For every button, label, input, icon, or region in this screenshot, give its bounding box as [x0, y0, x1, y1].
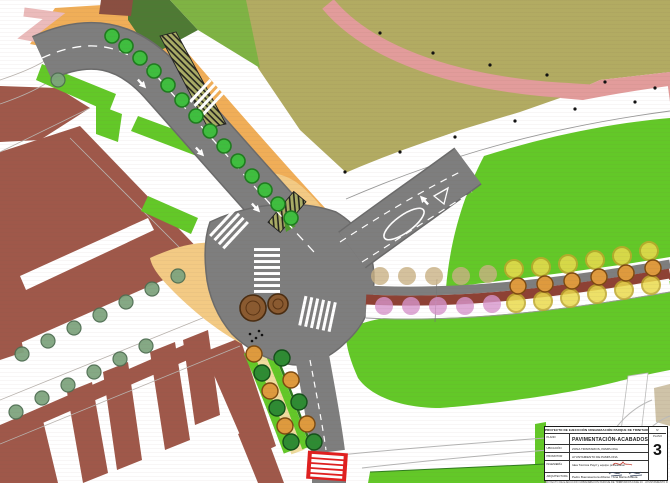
tree-symbol [87, 365, 101, 379]
tree-symbol [371, 267, 389, 285]
tree-symbol [537, 276, 553, 292]
tree-symbol [113, 352, 127, 366]
site-plan-drawing [0, 0, 670, 483]
tree-symbol [41, 334, 55, 348]
road-edge-lines-bottom [340, 438, 548, 468]
lamp-dot [431, 51, 434, 54]
tree-symbol [133, 51, 147, 65]
site-plan-page: PROYECTO DE EJECUCIÓN URBANIZACIÓN PARQU… [0, 0, 670, 483]
tree-symbol [283, 434, 299, 450]
sheet-number: 3 [649, 442, 666, 460]
lamp-dot [261, 334, 264, 337]
tree-symbol [51, 73, 65, 87]
tree-symbol [254, 365, 270, 381]
tree-symbol [119, 295, 133, 309]
tree-symbol [505, 260, 523, 278]
tree-symbol [145, 282, 159, 296]
lamp-dot [398, 150, 401, 153]
tree-symbol [119, 39, 133, 53]
promotor-value: AYUNTAMIENTO DE PAMPLONA [570, 453, 649, 461]
lamp-dot [633, 100, 636, 103]
tree-symbol [306, 434, 322, 450]
tree-symbol [564, 273, 580, 289]
ingenieria-value: Idea Técnica Payrl y equipo profesional [570, 461, 649, 473]
tree-symbol [277, 418, 293, 434]
tree-symbol [291, 394, 307, 410]
tree-symbol [479, 265, 497, 283]
lamp-dot [343, 170, 346, 173]
title-block: PROYECTO DE EJECUCIÓN URBANIZACIÓN PARQU… [544, 426, 668, 481]
tree-symbol [67, 321, 81, 335]
tree-symbol [425, 267, 443, 285]
tree-symbol [586, 251, 604, 269]
ingenieria-label: INGENIERÍA [545, 461, 570, 473]
tree-symbol [375, 297, 393, 315]
tree-symbol [175, 93, 189, 107]
tree-symbol [510, 278, 526, 294]
tree-symbol [269, 400, 285, 416]
tree-symbol [93, 308, 107, 322]
tree-symbol [591, 269, 607, 285]
red-crosswalk [306, 451, 348, 482]
tree-symbol [9, 405, 23, 419]
tree-symbol [105, 29, 119, 43]
lamp-dot [453, 135, 456, 138]
tree-symbol [456, 297, 474, 315]
sheet-corner-header: Nº [649, 427, 666, 434]
tree-symbol [618, 265, 634, 281]
tree-symbol [268, 294, 288, 314]
tree-symbol [402, 297, 420, 315]
tree-symbol [283, 372, 299, 388]
tree-symbol [398, 267, 416, 285]
arquitectura-value: Pedro Buenaventura Alfonso - Ana María Z… [570, 473, 649, 481]
tree-symbol [642, 276, 660, 294]
lamp-dot [249, 333, 252, 336]
lamp-dot [251, 340, 254, 343]
building-finger [183, 330, 220, 425]
arquitectura-label: ARQUITECTURA [545, 473, 570, 481]
lamp-dot [258, 330, 261, 333]
tree-symbol [274, 350, 290, 366]
tree-symbol [452, 267, 470, 285]
lamp-dot [488, 63, 491, 66]
promotor-label: PROMOTOR [545, 453, 570, 461]
tree-symbol [532, 258, 550, 276]
sheet-label: PLANO [649, 435, 666, 438]
ubicacion-label: UBICACIÓN [545, 445, 570, 453]
tree-symbol [284, 211, 298, 225]
tree-symbol [258, 183, 272, 197]
lamp-dot [255, 337, 258, 340]
tree-symbol [645, 260, 661, 276]
tree-symbol [147, 64, 161, 78]
lamp-dot [378, 31, 381, 34]
lamp-dot [653, 86, 656, 89]
tree-symbol [559, 255, 577, 273]
tree-symbol [534, 292, 552, 310]
project-header: PROYECTO DE EJECUCIÓN URBANIZACIÓN PARQU… [545, 427, 649, 434]
lamp-dot [545, 73, 548, 76]
tree-symbol [61, 378, 75, 392]
tree-symbol [35, 391, 49, 405]
tree-symbol [203, 124, 217, 138]
tree-symbol [429, 297, 447, 315]
tree-symbol [299, 416, 315, 432]
lamp-dot [573, 107, 576, 110]
tree-symbol [245, 169, 259, 183]
tree-symbol [483, 295, 501, 313]
tree-symbol [231, 154, 245, 168]
tree-symbol [246, 346, 262, 362]
sheet-number-cell: PLANO 3 [649, 434, 666, 480]
lamp-dot [513, 119, 516, 122]
building-top-rect [99, 0, 133, 16]
bottom-verge-strip [368, 464, 546, 483]
tree-symbol [189, 109, 203, 123]
tree-symbol [262, 383, 278, 399]
tree-symbol [588, 285, 606, 303]
lamp-dot [603, 80, 606, 83]
tree-symbol [15, 347, 29, 361]
tree-symbol [161, 78, 175, 92]
tree-symbol [171, 269, 185, 283]
tree-symbol [613, 247, 631, 265]
plano-label: PLANO [545, 434, 570, 445]
plano-value: PAVIMENTACIÓN-ACABADOS [570, 434, 649, 445]
tree-symbol [139, 339, 153, 353]
tree-symbol [240, 295, 266, 321]
tree-symbol [640, 242, 658, 260]
tree-symbol [217, 139, 231, 153]
tree-symbol [615, 281, 633, 299]
green-strip [96, 104, 122, 142]
tree-symbol [271, 197, 285, 211]
ubicacion-value: ZONA TRINITARIOS, PAMPLONA [570, 445, 649, 453]
tree-symbol [507, 294, 525, 312]
tree-symbol [561, 289, 579, 307]
